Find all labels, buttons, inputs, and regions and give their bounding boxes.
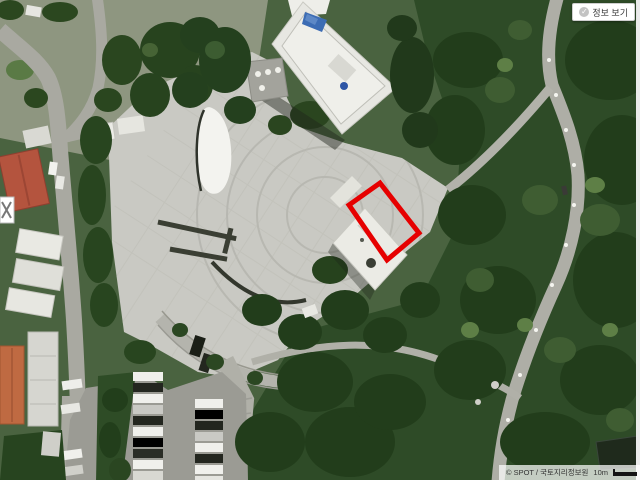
map-window: ✓ 정보 보기 © SPOT / 국토지리정보원 10m bbox=[0, 0, 640, 480]
attribution-bar: © SPOT / 국토지리정보원 10m bbox=[499, 465, 640, 480]
gray-annex bbox=[246, 58, 288, 102]
copyright-text: © SPOT / 국토지리정보원 bbox=[506, 467, 588, 478]
x-label-box bbox=[0, 197, 14, 223]
info-toggle-button[interactable]: ✓ 정보 보기 bbox=[572, 3, 635, 21]
scale-label: 10m bbox=[593, 468, 608, 477]
parking-lot bbox=[61, 372, 248, 480]
map-canvas[interactable] bbox=[0, 0, 640, 480]
satellite-imagery bbox=[0, 0, 640, 480]
check-circle-icon: ✓ bbox=[579, 7, 589, 17]
scale-bar bbox=[613, 469, 637, 476]
info-button-label: 정보 보기 bbox=[592, 6, 628, 19]
window-edge-strip bbox=[636, 0, 640, 480]
parked-cars-column-2 bbox=[195, 399, 223, 480]
